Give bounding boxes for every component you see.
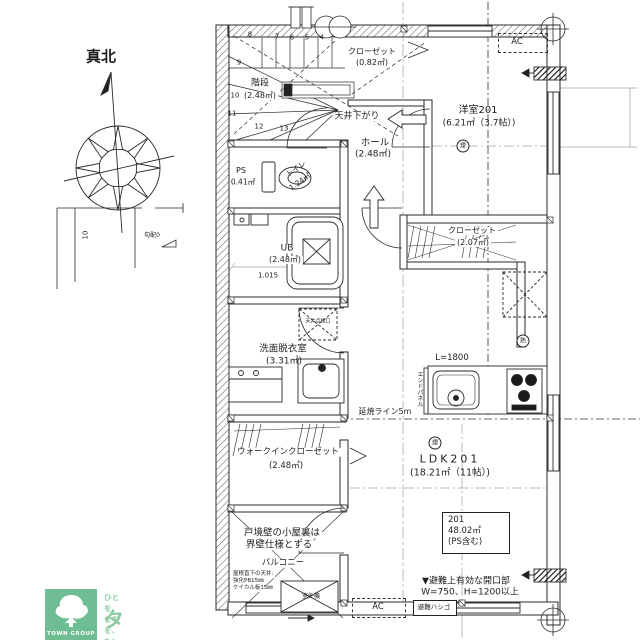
left-arrow-icon [388, 110, 426, 128]
unit-area-box [442, 512, 510, 554]
up-arrow-icon [364, 186, 384, 228]
scale-bar [57, 203, 183, 289]
ac-box-top [498, 33, 548, 53]
washing-machine-icon [298, 359, 344, 403]
ceiling-inspection-hatch [299, 309, 337, 340]
compass-icon [64, 126, 174, 210]
toilet-icon [262, 162, 311, 192]
windows [246, 26, 559, 613]
bathtub-icon [234, 214, 343, 289]
vanity-counter-icon [229, 367, 282, 402]
escape-ladder-box [413, 600, 457, 616]
kitchen-counter [424, 366, 547, 414]
plan-linework [0, 0, 641, 640]
floor-plan-page: TOWN GROUP ひとを、まちを、もっと豊かに。 タウングループ [0, 0, 641, 640]
ac-box-bottom [352, 598, 406, 618]
